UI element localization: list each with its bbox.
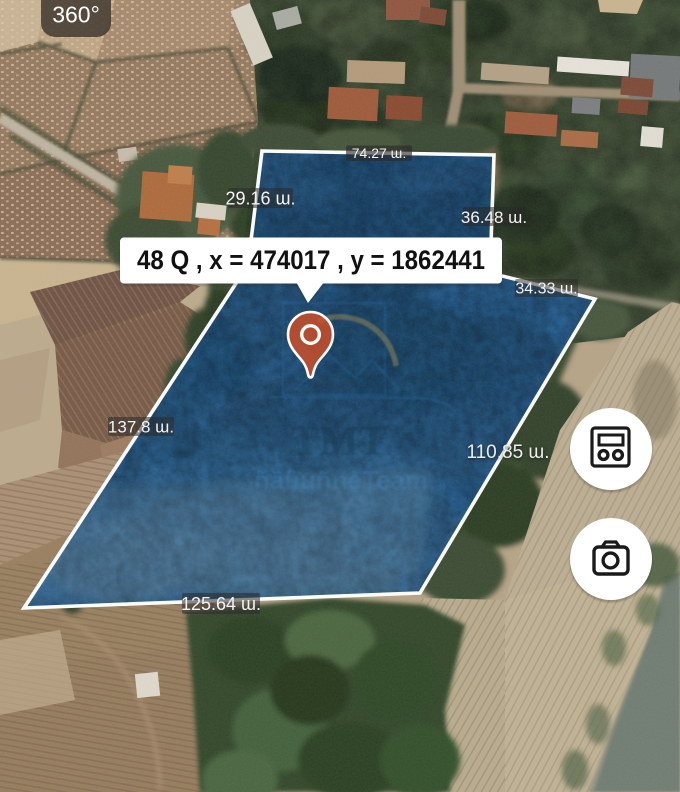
svg-text:137.8 ɯ.: 137.8 ɯ. [108,417,174,436]
svg-text:ñāûuñnēTeam: ñāûuñnēTeam [254,465,428,495]
svg-text:74.27 ɯ.: 74.27 ɯ. [352,145,406,161]
svg-text:34.33 ɯ.: 34.33 ɯ. [515,281,577,298]
svg-text:36.48 ɯ.: 36.48 ɯ. [461,208,527,227]
svg-text:29.16 ɯ.: 29.16 ɯ. [225,189,295,209]
svg-text:48 Q , x = 474017 , y = 186244: 48 Q , x = 474017 , y = 1862441 [137,245,485,275]
svg-text:110.85 ɯ.: 110.85 ɯ. [466,442,549,463]
svg-text:TMT: TMT [291,419,387,465]
svg-text:125.64 ɯ.: 125.64 ɯ. [181,594,261,614]
svg-text:360°: 360° [52,2,100,28]
